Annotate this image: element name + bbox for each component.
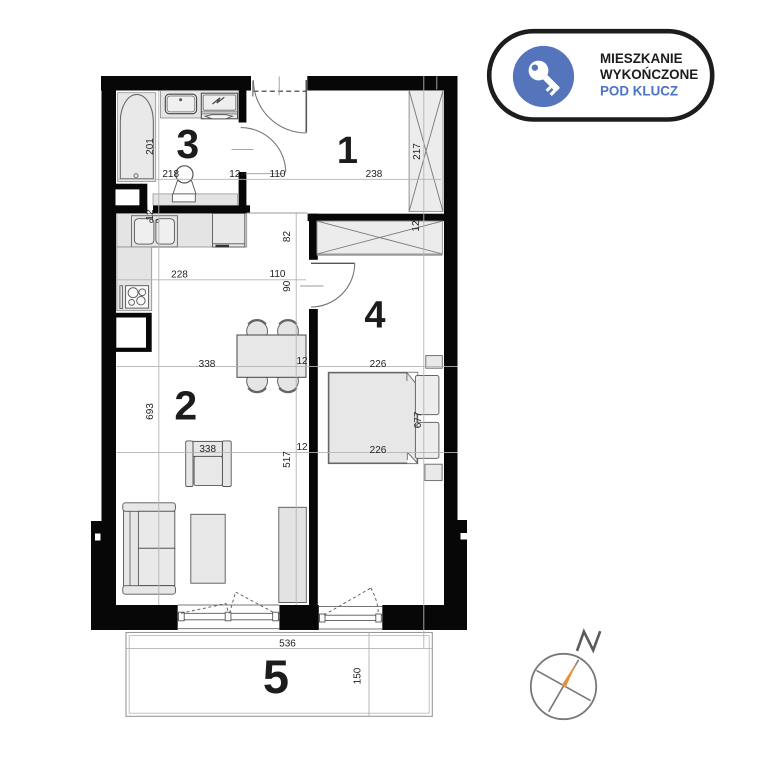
svg-text:2: 2	[174, 382, 197, 428]
svg-text:12: 12	[229, 169, 241, 180]
svg-text:201: 201	[145, 138, 156, 155]
svg-text:1: 1	[337, 130, 358, 172]
svg-text:3: 3	[176, 121, 199, 167]
svg-text:693: 693	[145, 403, 156, 420]
svg-text:217: 217	[412, 143, 423, 160]
svg-text:226: 226	[370, 359, 387, 370]
svg-text:12: 12	[411, 220, 422, 232]
svg-text:536: 536	[279, 638, 296, 649]
svg-text:12: 12	[296, 442, 308, 453]
svg-text:110: 110	[270, 169, 286, 180]
svg-text:338: 338	[199, 359, 216, 370]
svg-text:4: 4	[364, 295, 385, 337]
svg-text:238: 238	[366, 169, 383, 180]
svg-text:12: 12	[296, 356, 308, 367]
svg-text:5: 5	[263, 650, 289, 703]
svg-text:517: 517	[282, 451, 293, 468]
svg-text:90: 90	[282, 280, 293, 292]
svg-text:110: 110	[270, 269, 286, 280]
svg-text:677: 677	[413, 411, 424, 428]
svg-text:338: 338	[199, 444, 216, 455]
svg-text:226: 226	[370, 445, 387, 456]
svg-text:MIESZKANIE: MIESZKANIE	[600, 51, 683, 66]
svg-text:82: 82	[282, 231, 293, 243]
svg-text:WYKOŃCZONE: WYKOŃCZONE	[600, 67, 698, 82]
svg-text:12: 12	[145, 209, 156, 221]
svg-text:218: 218	[162, 169, 179, 180]
svg-text:POD KLUCZ: POD KLUCZ	[600, 84, 678, 99]
svg-text:150: 150	[353, 667, 364, 684]
svg-text:228: 228	[171, 270, 188, 281]
